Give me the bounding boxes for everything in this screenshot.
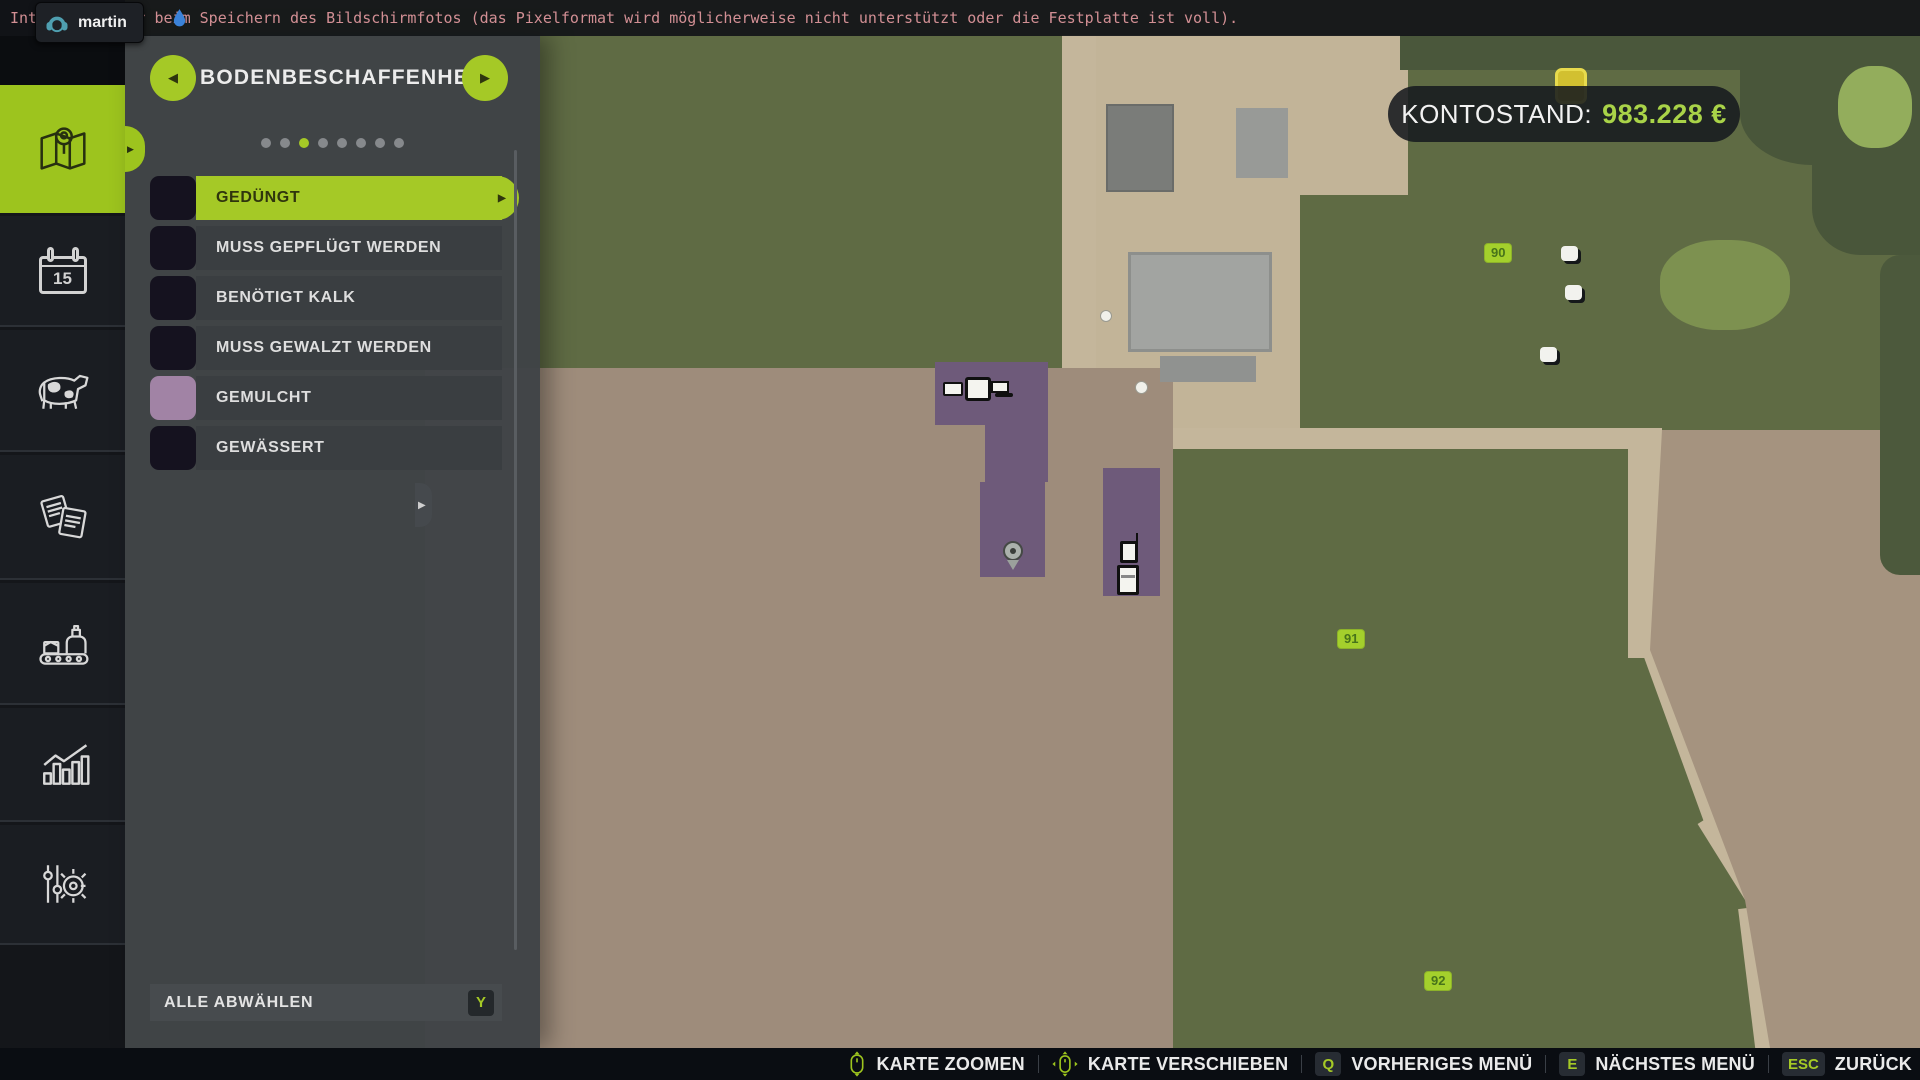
sidebar-tab-production[interactable] (0, 583, 125, 705)
hint-previous-menu[interactable]: Q VORHERIGES MENÜ (1315, 1052, 1532, 1076)
mouse-zoom-icon (848, 1051, 866, 1077)
map-meadow (1838, 66, 1912, 148)
soil-state-row[interactable]: GEMULCHT ▶ (150, 376, 502, 420)
divider (1038, 1055, 1039, 1073)
error-message: Interner Fehler beim Speichern des Bilds… (10, 9, 1238, 27)
hint-map-zoom[interactable]: KARTE ZOOMEN (848, 1051, 1024, 1077)
vehicle-marker[interactable] (1561, 246, 1578, 261)
map-trees (1812, 150, 1920, 255)
soil-color-swatch (150, 326, 196, 370)
key-hint-q: Q (1315, 1052, 1341, 1076)
soil-color-swatch (150, 226, 196, 270)
documents-icon (33, 490, 93, 544)
balance-label: KONTOSTAND: (1401, 99, 1592, 130)
vehicle-marker[interactable] (1540, 347, 1557, 362)
soil-state-row[interactable]: GEDÜNGT ▶ (150, 176, 502, 220)
menu-sidebar: 15 (0, 0, 125, 1080)
soil-color-swatch (150, 376, 196, 420)
soil-state-row[interactable]: MUSS GEPFLÜGT WERDEN ▶ (150, 226, 502, 270)
panel-collapse-handle[interactable]: ▶ (415, 483, 432, 527)
key-hint-e: E (1559, 1052, 1585, 1076)
field-number-badge: 91 (1337, 629, 1365, 649)
map-building (1106, 104, 1174, 192)
player-name: martin (78, 14, 127, 32)
map-building (1160, 356, 1256, 382)
sidebar-tab-settings[interactable] (0, 825, 125, 945)
soil-condition-panel: ◀ BODENBESCHAFFENHEIT ▶ GEDÜNGT ▶ MUSS G… (125, 35, 540, 1048)
page-dot (299, 138, 309, 148)
balance-value: 983.228 € (1602, 99, 1727, 130)
map-field-plowed (1625, 430, 1920, 1048)
hint-back[interactable]: ESC ZURÜCK (1782, 1052, 1912, 1076)
sidebar-tab-calendar[interactable]: 15 (0, 216, 125, 327)
previous-category-button[interactable]: ◀ (150, 55, 196, 101)
page-dot (375, 138, 385, 148)
field-number-badge: 92 (1424, 971, 1452, 991)
sliders-gear-icon (33, 857, 93, 911)
map-trees (1880, 255, 1920, 575)
soil-state-list: GEDÜNGT ▶ MUSS GEPFLÜGT WERDEN ▶ BENÖTIG… (150, 176, 502, 476)
map-building (1236, 108, 1288, 178)
sidebar-tab-map[interactable] (0, 85, 125, 213)
panel-header: ◀ BODENBESCHAFFENHEIT ▶ (125, 55, 540, 101)
player-nameplate: martin (35, 2, 144, 43)
tractor-trailer-marker[interactable] (1115, 541, 1141, 599)
soil-color-swatch (150, 176, 196, 220)
voice-activity-icon (172, 8, 187, 27)
soil-color-swatch (150, 426, 196, 470)
page-dot (394, 138, 404, 148)
cow-icon (33, 366, 93, 414)
page-dot (356, 138, 366, 148)
pagination-dots (125, 138, 540, 148)
soil-state-row[interactable]: BENÖTIGT KALK ▶ (150, 276, 502, 320)
divider (1768, 1055, 1769, 1073)
sidebar-tab-animals[interactable] (0, 330, 125, 452)
notification-bar: Interner Fehler beim Speichern des Bilds… (0, 0, 1920, 36)
controls-hint-bar: KARTE ZOOMEN KARTE VERSCHIEBEN Q VORHERI… (0, 1048, 1920, 1080)
map-building (1128, 252, 1272, 352)
map-field-mulched (985, 425, 1048, 482)
map-icon (32, 122, 94, 176)
location-pin-icon (1003, 541, 1023, 561)
vehicle-marker[interactable] (1565, 285, 1582, 300)
mouse-move-icon (1052, 1051, 1078, 1077)
key-hint-y: Y (468, 990, 494, 1016)
panel-title: BODENBESCHAFFENHEIT (200, 66, 458, 90)
headset-icon (44, 10, 70, 36)
calendar-day: 15 (42, 269, 84, 289)
page-dot (337, 138, 347, 148)
calendar-icon: 15 (39, 256, 87, 294)
divider (1545, 1055, 1546, 1073)
sidebar-tab-statistics[interactable] (0, 708, 125, 822)
balance-display: KONTOSTAND: 983.228 € (1388, 86, 1740, 142)
key-hint-esc: ESC (1782, 1052, 1825, 1076)
soil-state-row[interactable]: MUSS GEWALZT WERDEN ▶ (150, 326, 502, 370)
page-dot (261, 138, 271, 148)
hint-map-pan[interactable]: KARTE VERSCHIEBEN (1052, 1051, 1288, 1077)
page-dot (280, 138, 290, 148)
chart-icon (33, 739, 93, 789)
game-screen: 90 91 92 KONTOSTAND: 983.228 € (0, 0, 1920, 1080)
divider (1301, 1055, 1302, 1073)
deselect-all-button[interactable]: ALLE ABWÄHLEN Y (150, 984, 502, 1021)
loader-vehicle-marker[interactable] (943, 377, 1013, 403)
map-object-marker[interactable] (1135, 381, 1148, 394)
soil-color-swatch (150, 276, 196, 320)
map-meadow (1660, 240, 1790, 330)
panel-scrollbar[interactable] (514, 150, 517, 950)
map-object-marker[interactable] (1100, 310, 1112, 322)
field-number-badge: 90 (1484, 243, 1512, 263)
soil-state-row[interactable]: GEWÄSSERT ▶ (150, 426, 502, 470)
sidebar-tab-contracts[interactable] (0, 455, 125, 580)
production-icon (33, 617, 93, 669)
page-dot (318, 138, 328, 148)
next-category-button[interactable]: ▶ (462, 55, 508, 101)
hint-next-menu[interactable]: E NÄCHSTES MENÜ (1559, 1052, 1755, 1076)
